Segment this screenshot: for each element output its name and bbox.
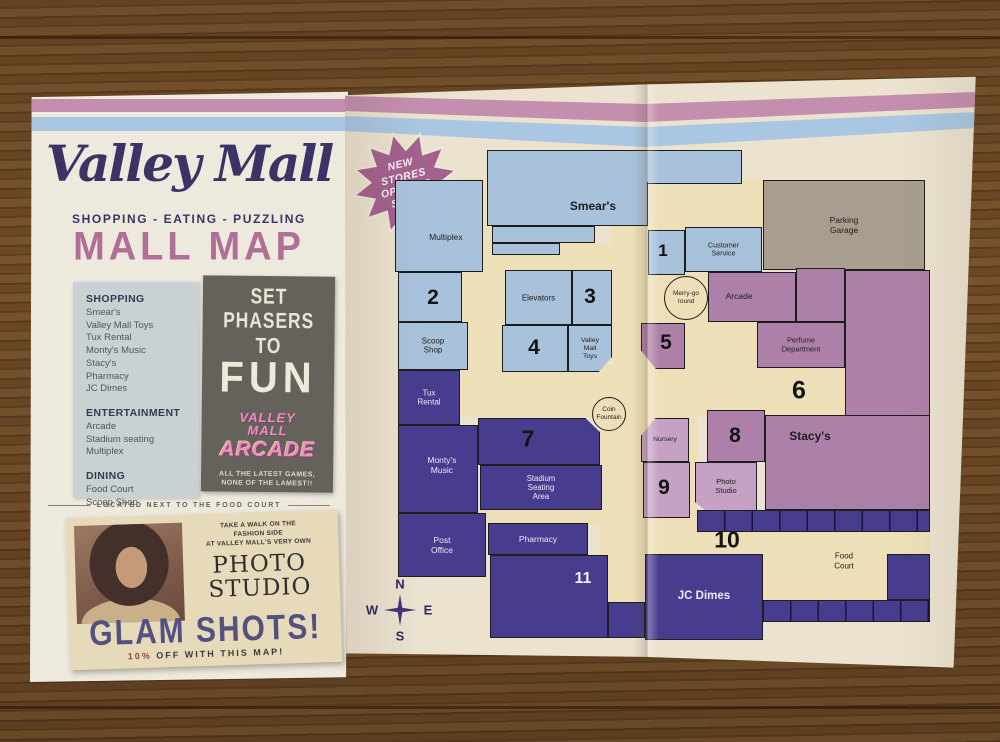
arcade-label: Arcade — [726, 291, 753, 301]
photo-studio-label: Photo Studio — [715, 478, 736, 496]
smears-annex-a-room — [492, 226, 595, 243]
blue-stripe — [30, 117, 348, 131]
stacys-label: Stacy's — [789, 429, 831, 443]
photo-studio-room: Photo Studio — [695, 462, 757, 512]
directory-item: Multiplex — [86, 446, 199, 459]
elevators-label: Elevators — [522, 293, 555, 302]
photo-studio-ad: TAKE A WALK ON THE FASHION SIDE AT VALLE… — [66, 510, 343, 670]
hall-perfume-west — [685, 320, 760, 370]
arcade-ad-fun: FUN — [202, 353, 335, 403]
glam-model-photo — [74, 523, 185, 624]
mall-map-photo: Valley Mall SHOPPING - EATING - PUZZLING… — [0, 0, 1000, 742]
pink-stripe — [30, 99, 348, 112]
food-stalls-east-room — [887, 554, 930, 600]
post-office-label: Post Office — [431, 535, 453, 555]
jc-dimes-room: JC Dimes — [645, 554, 763, 640]
stacys-room: Stacy's — [765, 415, 930, 510]
scoop-shop-room: Scoop Shop — [398, 322, 468, 370]
map-number-9: 9 — [658, 476, 670, 500]
arcade-logo-arcade: ARCADE — [201, 437, 333, 462]
perfume-department-room: Perfume Department — [757, 322, 845, 368]
map-number-1: 1 — [658, 241, 667, 261]
arcade-logo-valley-mall: VALLEY MALL — [201, 410, 333, 439]
smears-label: Smear's — [570, 199, 616, 213]
photo-ad-kicker: LOCATED NEXT TO THE FOOD COURT — [97, 502, 281, 509]
map-number-2: 2 — [427, 286, 439, 310]
merry-go-round-label: Merry-go round — [673, 290, 699, 306]
directory-heading: SHOPPING — [86, 293, 199, 305]
compass-star-icon — [384, 594, 416, 626]
map-number-8: 8 — [729, 424, 741, 448]
directory-item: JC Dimes — [86, 383, 199, 396]
tux-rental-room: Tux Rental — [398, 370, 460, 425]
smears-upper-room — [487, 150, 742, 184]
photo-studio-title: PHOTO STUDIO — [185, 550, 334, 603]
directory-list: SHOPPINGSmear'sValley Mall ToysTux Renta… — [86, 293, 199, 510]
food-court-label: Food Court — [834, 551, 854, 570]
directory-item: Food Court — [86, 484, 199, 497]
room-11-block-room — [490, 555, 608, 638]
directory-item: Arcade — [86, 421, 199, 434]
valley-mall-logo: Valley Mall — [30, 134, 348, 193]
map-number-6: 6 — [792, 377, 806, 406]
directory-heading: DINING — [86, 470, 199, 482]
map-number-11: 11 — [575, 570, 592, 588]
coin-fountain: Coin Fountain — [592, 397, 626, 431]
map-spread-panel: NEW STORES OPENING SOON! N S W E Multipl… — [345, 75, 977, 670]
merry-go-round: Merry-go round — [664, 276, 708, 320]
map-number-7: 7 — [522, 426, 535, 453]
kicker-row: LOCATED NEXT TO THE FOOD COURT — [30, 502, 348, 509]
directory-heading: ENTERTAINMENT — [86, 407, 199, 419]
directory-item: Tux Rental — [86, 332, 199, 345]
kicker-rule — [48, 505, 90, 506]
directory-item: Pharmacy — [86, 371, 199, 384]
food-stalls-south-room — [763, 600, 930, 622]
jc-dimes-label: JC Dimes — [678, 590, 730, 604]
coin-fountain-label: Coin Fountain — [596, 406, 621, 422]
map-number-5: 5 — [660, 331, 672, 355]
fold-crease — [633, 75, 659, 670]
hall-northeast — [650, 180, 765, 227]
pharmacy-label: Pharmacy — [519, 534, 557, 544]
smears-annex-b-room — [492, 243, 560, 255]
room-7-room — [478, 418, 600, 465]
compass-rose: N S W E — [360, 568, 424, 646]
montys-music-room: Monty's Music — [398, 425, 478, 513]
kicker-rule — [288, 505, 330, 506]
valley-mall-toys-label: Valley Mall Toys — [581, 336, 599, 360]
compass-west: W — [366, 603, 378, 618]
offer-percent: 10% — [128, 651, 152, 662]
smears-room: Smear's — [487, 182, 648, 226]
scoop-shop-label: Scoop Shop — [422, 337, 445, 356]
parking-garage-label: Parking Garage — [830, 215, 859, 235]
compass-north: N — [395, 577, 404, 592]
cover-tagline: SHOPPING - EATING - PUZZLING — [30, 212, 348, 226]
arcade-ad-tagline: ALL THE LATEST GAMES, NONE OF THE LAMEST… — [201, 469, 333, 489]
stadium-seating-room: Stadium Seating Area — [480, 465, 602, 510]
pharmacy-room: Pharmacy — [488, 523, 588, 555]
directory-item: Stadium seating — [86, 434, 199, 447]
multiplex-room: Multiplex — [395, 180, 483, 272]
mall-map-title: MALL MAP — [30, 225, 348, 270]
post-office-room: Post Office — [398, 513, 486, 577]
arcade-annex-room — [796, 268, 845, 322]
elevators-room: Elevators — [505, 270, 572, 325]
montys-music-label: Monty's Music — [427, 455, 456, 475]
directory-item: Smear's — [86, 307, 199, 320]
directory-item: Valley Mall Toys — [86, 320, 199, 333]
wood-plank-seam — [0, 706, 1000, 709]
customer-service-room: Customer Service — [685, 227, 762, 272]
directory-item: Stacy's — [86, 358, 199, 371]
stadium-seating-label: Stadium Seating Area — [527, 474, 556, 502]
directory-section: ENTERTAINMENTArcadeStadium seatingMultip… — [86, 407, 199, 459]
map-number-4: 4 — [528, 336, 540, 360]
map-number-10: 10 — [714, 527, 740, 554]
compass-south: S — [396, 629, 405, 644]
directory-box: SHOPPINGSmear'sValley Mall ToysTux Renta… — [73, 282, 199, 498]
photo-ad-lead: TAKE A WALK ON THE FASHION SIDE AT VALLE… — [184, 518, 333, 550]
multiplex-label: Multiplex — [429, 232, 463, 242]
wood-plank-seam — [0, 36, 1000, 39]
directory-section: SHOPPINGSmear'sValley Mall ToysTux Renta… — [86, 293, 199, 396]
hall-food-court — [763, 554, 887, 600]
compass-east: E — [424, 603, 433, 618]
customer-service-label: Customer Service — [708, 241, 739, 258]
tux-rental-label: Tux Rental — [417, 388, 440, 407]
directory-item: Monty's Music — [86, 345, 199, 358]
map-number-3: 3 — [584, 285, 596, 309]
brochure-cover-panel: Valley Mall SHOPPING - EATING - PUZZLING… — [30, 90, 348, 682]
arcade-room: Arcade — [708, 272, 796, 322]
parking-garage-room: Parking Garage — [763, 180, 925, 270]
arcade-ad: SET PHASERS TO FUN VALLEY MALL ARCADE AL… — [201, 275, 335, 492]
perfume-department-label: Perfume Department — [782, 336, 821, 353]
arcade-ad-headline: SET PHASERS TO — [208, 285, 330, 360]
